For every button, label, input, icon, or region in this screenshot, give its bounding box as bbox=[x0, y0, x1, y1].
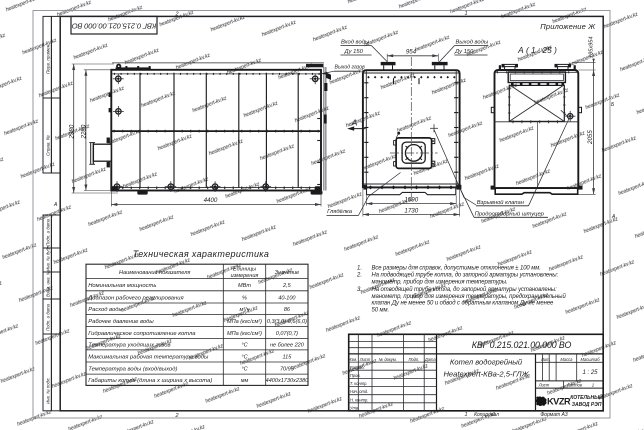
svg-text:Температура уходящих газов: Температура уходящих газов bbox=[88, 342, 170, 348]
svg-text:Инв. № дубл.: Инв. № дубл. bbox=[46, 245, 51, 271]
svg-text:2.: 2. bbox=[356, 272, 362, 278]
svg-text:МПа (кгс/см²): МПа (кгс/см²) bbox=[227, 319, 262, 325]
svg-text:Heatexpert-КВа-2,5-ГЛЖ: Heatexpert-КВа-2,5-ГЛЖ bbox=[443, 370, 529, 379]
svg-text:МВт: МВт bbox=[238, 283, 251, 289]
svg-text:0,3(3,0)-0,6(6,0): 0,3(3,0)-0,6(6,0) bbox=[267, 319, 307, 325]
svg-text:Рабочее давление воды: Рабочее давление воды bbox=[88, 319, 154, 325]
svg-text:Формат А3: Формат А3 bbox=[540, 412, 568, 418]
svg-text:°С: °С bbox=[241, 367, 248, 373]
svg-text:Габариты котла (длина х ширина: Габариты котла (длина х ширина х высота) bbox=[88, 378, 212, 384]
svg-text:манометр, прибор для измерения: манометр, прибор для измерения температу… bbox=[372, 293, 567, 300]
svg-text:Масса: Масса bbox=[560, 357, 573, 362]
svg-text:Изм.: Изм. bbox=[348, 357, 357, 362]
svg-text:Нач. отд.: Нач. отд. bbox=[350, 389, 368, 394]
svg-text:Глядёлка: Глядёлка bbox=[327, 209, 353, 215]
svg-text:Листов: Листов bbox=[566, 383, 583, 388]
svg-text:4400: 4400 bbox=[204, 197, 218, 204]
svg-text:не более 220: не более 220 bbox=[270, 342, 305, 348]
svg-text:Лист: Лист bbox=[538, 383, 550, 388]
svg-text:ЗАВОД РЭП: ЗАВОД РЭП bbox=[572, 402, 602, 408]
svg-text:А ( 1 : 25 ): А ( 1 : 25 ) bbox=[517, 45, 557, 55]
svg-text:Подп. и дата: Подп. и дата bbox=[46, 218, 51, 246]
svg-text:2380: 2380 bbox=[68, 124, 75, 139]
svg-text:манометр, прибор для измерения: манометр, прибор для измерения температу… bbox=[372, 279, 508, 285]
svg-text:4400х1730х2380: 4400х1730х2380 bbox=[266, 378, 309, 384]
svg-text:115: 115 bbox=[282, 354, 292, 360]
svg-text:2055: 2055 bbox=[587, 130, 594, 145]
svg-text:Все размеры для справок, допус: Все размеры для справок, допустимые откл… bbox=[372, 265, 541, 271]
svg-text:1: 1 bbox=[464, 412, 467, 418]
svg-text:3.: 3. bbox=[357, 287, 362, 293]
svg-text:Т. контр.: Т. контр. bbox=[350, 381, 368, 386]
svg-text:Лист: Лист bbox=[359, 357, 371, 362]
svg-text:Пров.: Пров. bbox=[350, 373, 361, 378]
svg-text:Единицы: Единицы bbox=[233, 267, 256, 273]
svg-text:954: 954 bbox=[406, 49, 417, 56]
svg-text:%: % bbox=[242, 295, 247, 301]
svg-text:КОТЕЛЬНЫЙ: КОТЕЛЬНЫЙ bbox=[570, 393, 603, 401]
svg-text:Вход воды: Вход воды bbox=[341, 40, 370, 46]
svg-text:Справ. №: Справ. № bbox=[46, 135, 51, 156]
svg-text:Перв. примен.: Перв. примен. bbox=[46, 43, 51, 74]
svg-text:70/95: 70/95 bbox=[280, 367, 295, 373]
svg-text:Максимальная рабочая температу: Максимальная рабочая температура воды bbox=[88, 354, 209, 360]
svg-text:1: 1 bbox=[464, 11, 467, 17]
svg-text:На подводящей трубе котла, до: На подводящей трубе котла, до запорной а… bbox=[372, 271, 559, 278]
svg-text:2,5: 2,5 bbox=[282, 283, 292, 289]
svg-text:Инв. № подл.: Инв. № подл. bbox=[46, 377, 51, 404]
svg-text:КВГ 0.215.021.00.000 ВО: КВГ 0.215.021.00.000 ВО bbox=[72, 21, 157, 30]
svg-text:40-100: 40-100 bbox=[278, 295, 296, 301]
svg-text:2280: 2280 bbox=[80, 124, 87, 139]
svg-text:KVZR: KVZR bbox=[547, 396, 571, 406]
svg-text:2: 2 bbox=[174, 11, 178, 17]
svg-text:Масштаб: Масштаб bbox=[580, 357, 600, 362]
svg-text:0,07(0,7): 0,07(0,7) bbox=[276, 331, 298, 337]
svg-text:Лит.: Лит. bbox=[540, 357, 551, 362]
svg-text:Разраб.: Разраб. bbox=[350, 365, 365, 370]
svg-text:Температура воды (вход/выход): Температура воды (вход/выход) bbox=[88, 367, 177, 373]
svg-text:1730: 1730 bbox=[404, 207, 418, 214]
svg-text:Утв.: Утв. bbox=[350, 405, 359, 410]
svg-text:Расход воды: Расход воды bbox=[88, 307, 123, 313]
svg-text:МПа (кгс/см²): МПа (кгс/см²) bbox=[227, 331, 262, 337]
svg-text:Наименование показателя: Наименование показателя bbox=[119, 270, 190, 276]
svg-text:Котел водогрейный: Котел водогрейный bbox=[450, 358, 523, 367]
svg-text:Диапазон рабочего регулировани: Диапазон рабочего регулирования bbox=[87, 295, 183, 301]
svg-text:86: 86 bbox=[284, 307, 291, 313]
svg-text:Продоотборный штуцер: Продоотборный штуцер bbox=[475, 210, 545, 217]
svg-text:А: А bbox=[53, 202, 58, 208]
svg-text:Дата: Дата bbox=[424, 357, 437, 362]
svg-text:А: А bbox=[611, 214, 616, 220]
svg-text:КВГ 0.215.021.00.000 ВО: КВГ 0.215.021.00.000 ВО bbox=[472, 340, 572, 350]
svg-text:1 : 25: 1 : 25 bbox=[582, 370, 598, 376]
svg-text:1.: 1. bbox=[357, 265, 362, 271]
svg-text:Гидравлическое сопротивление к: Гидравлическое сопротивление котла bbox=[88, 331, 196, 337]
svg-text:Выход газов: Выход газов bbox=[335, 65, 366, 71]
svg-text:м³/ч: м³/ч bbox=[239, 307, 249, 313]
svg-text:Номинальная мощность: Номинальная мощность bbox=[88, 283, 156, 289]
svg-text:На отводящей трубе котла, до з: На отводящей трубе котла, до запорной ар… bbox=[372, 286, 558, 293]
svg-text:50 мм.: 50 мм. bbox=[372, 308, 390, 314]
svg-text:°С: °С bbox=[241, 354, 248, 360]
svg-text:Взрывной клапан: Взрывной клапан bbox=[477, 199, 525, 206]
svg-text:измерения: измерения bbox=[231, 273, 259, 279]
svg-text:1590: 1590 bbox=[404, 197, 418, 204]
svg-text:2: 2 bbox=[174, 413, 178, 419]
svg-text:Техническая характеристика: Техническая характеристика bbox=[133, 249, 270, 259]
svg-text:185х954: 185х954 bbox=[588, 37, 594, 58]
svg-text:Н. контр.: Н. контр. bbox=[350, 397, 368, 402]
svg-text:Выход воды: Выход воды bbox=[456, 40, 489, 46]
svg-text:Взам. инв. №: Взам. инв. № bbox=[46, 270, 51, 297]
svg-text:Подп. и дата: Подп. и дата bbox=[46, 303, 51, 331]
svg-text:Копировал: Копировал bbox=[474, 412, 499, 418]
svg-text:№ докум.: № докум. bbox=[379, 357, 397, 362]
svg-text:Подп.: Подп. bbox=[408, 357, 419, 362]
svg-text:Приложение Ж: Приложение Ж bbox=[540, 22, 596, 31]
svg-text:клапан Ду не менее 50 и обвод: клапан Ду не менее 50 и обвод с обратным… bbox=[372, 301, 555, 307]
svg-text:Ду 150: Ду 150 bbox=[454, 49, 474, 55]
svg-text:Значение: Значение bbox=[275, 270, 300, 276]
svg-text:А: А bbox=[351, 118, 358, 128]
svg-text:Ду 150: Ду 150 bbox=[344, 49, 364, 55]
svg-text:мм: мм bbox=[241, 378, 249, 384]
svg-text:°С: °С bbox=[241, 342, 248, 348]
